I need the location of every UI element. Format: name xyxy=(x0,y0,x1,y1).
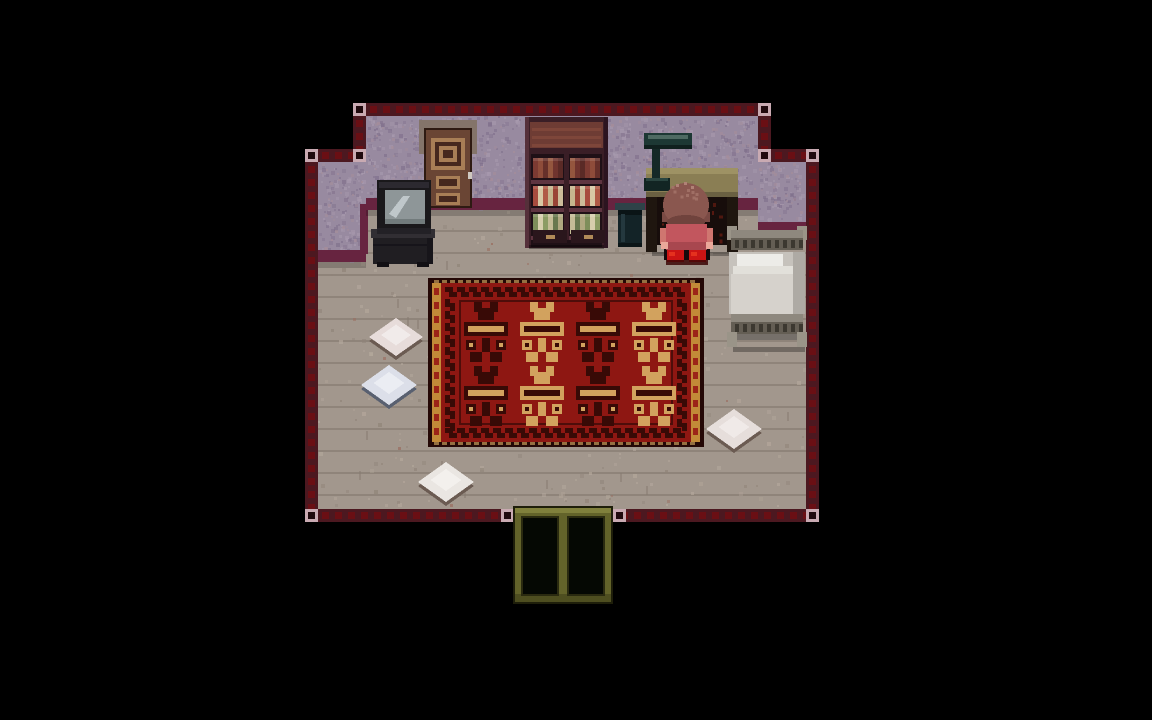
bed-sprite xyxy=(727,226,807,352)
bookshelf-sprite xyxy=(525,117,608,249)
patterned-rug-sprite xyxy=(428,278,704,447)
balcony-door-sprite xyxy=(513,506,613,604)
game-scene-canvas xyxy=(0,0,1152,720)
game-viewport[interactable] xyxy=(0,0,1152,720)
tv-sprite xyxy=(371,180,435,267)
trash-bin-sprite xyxy=(615,203,645,247)
